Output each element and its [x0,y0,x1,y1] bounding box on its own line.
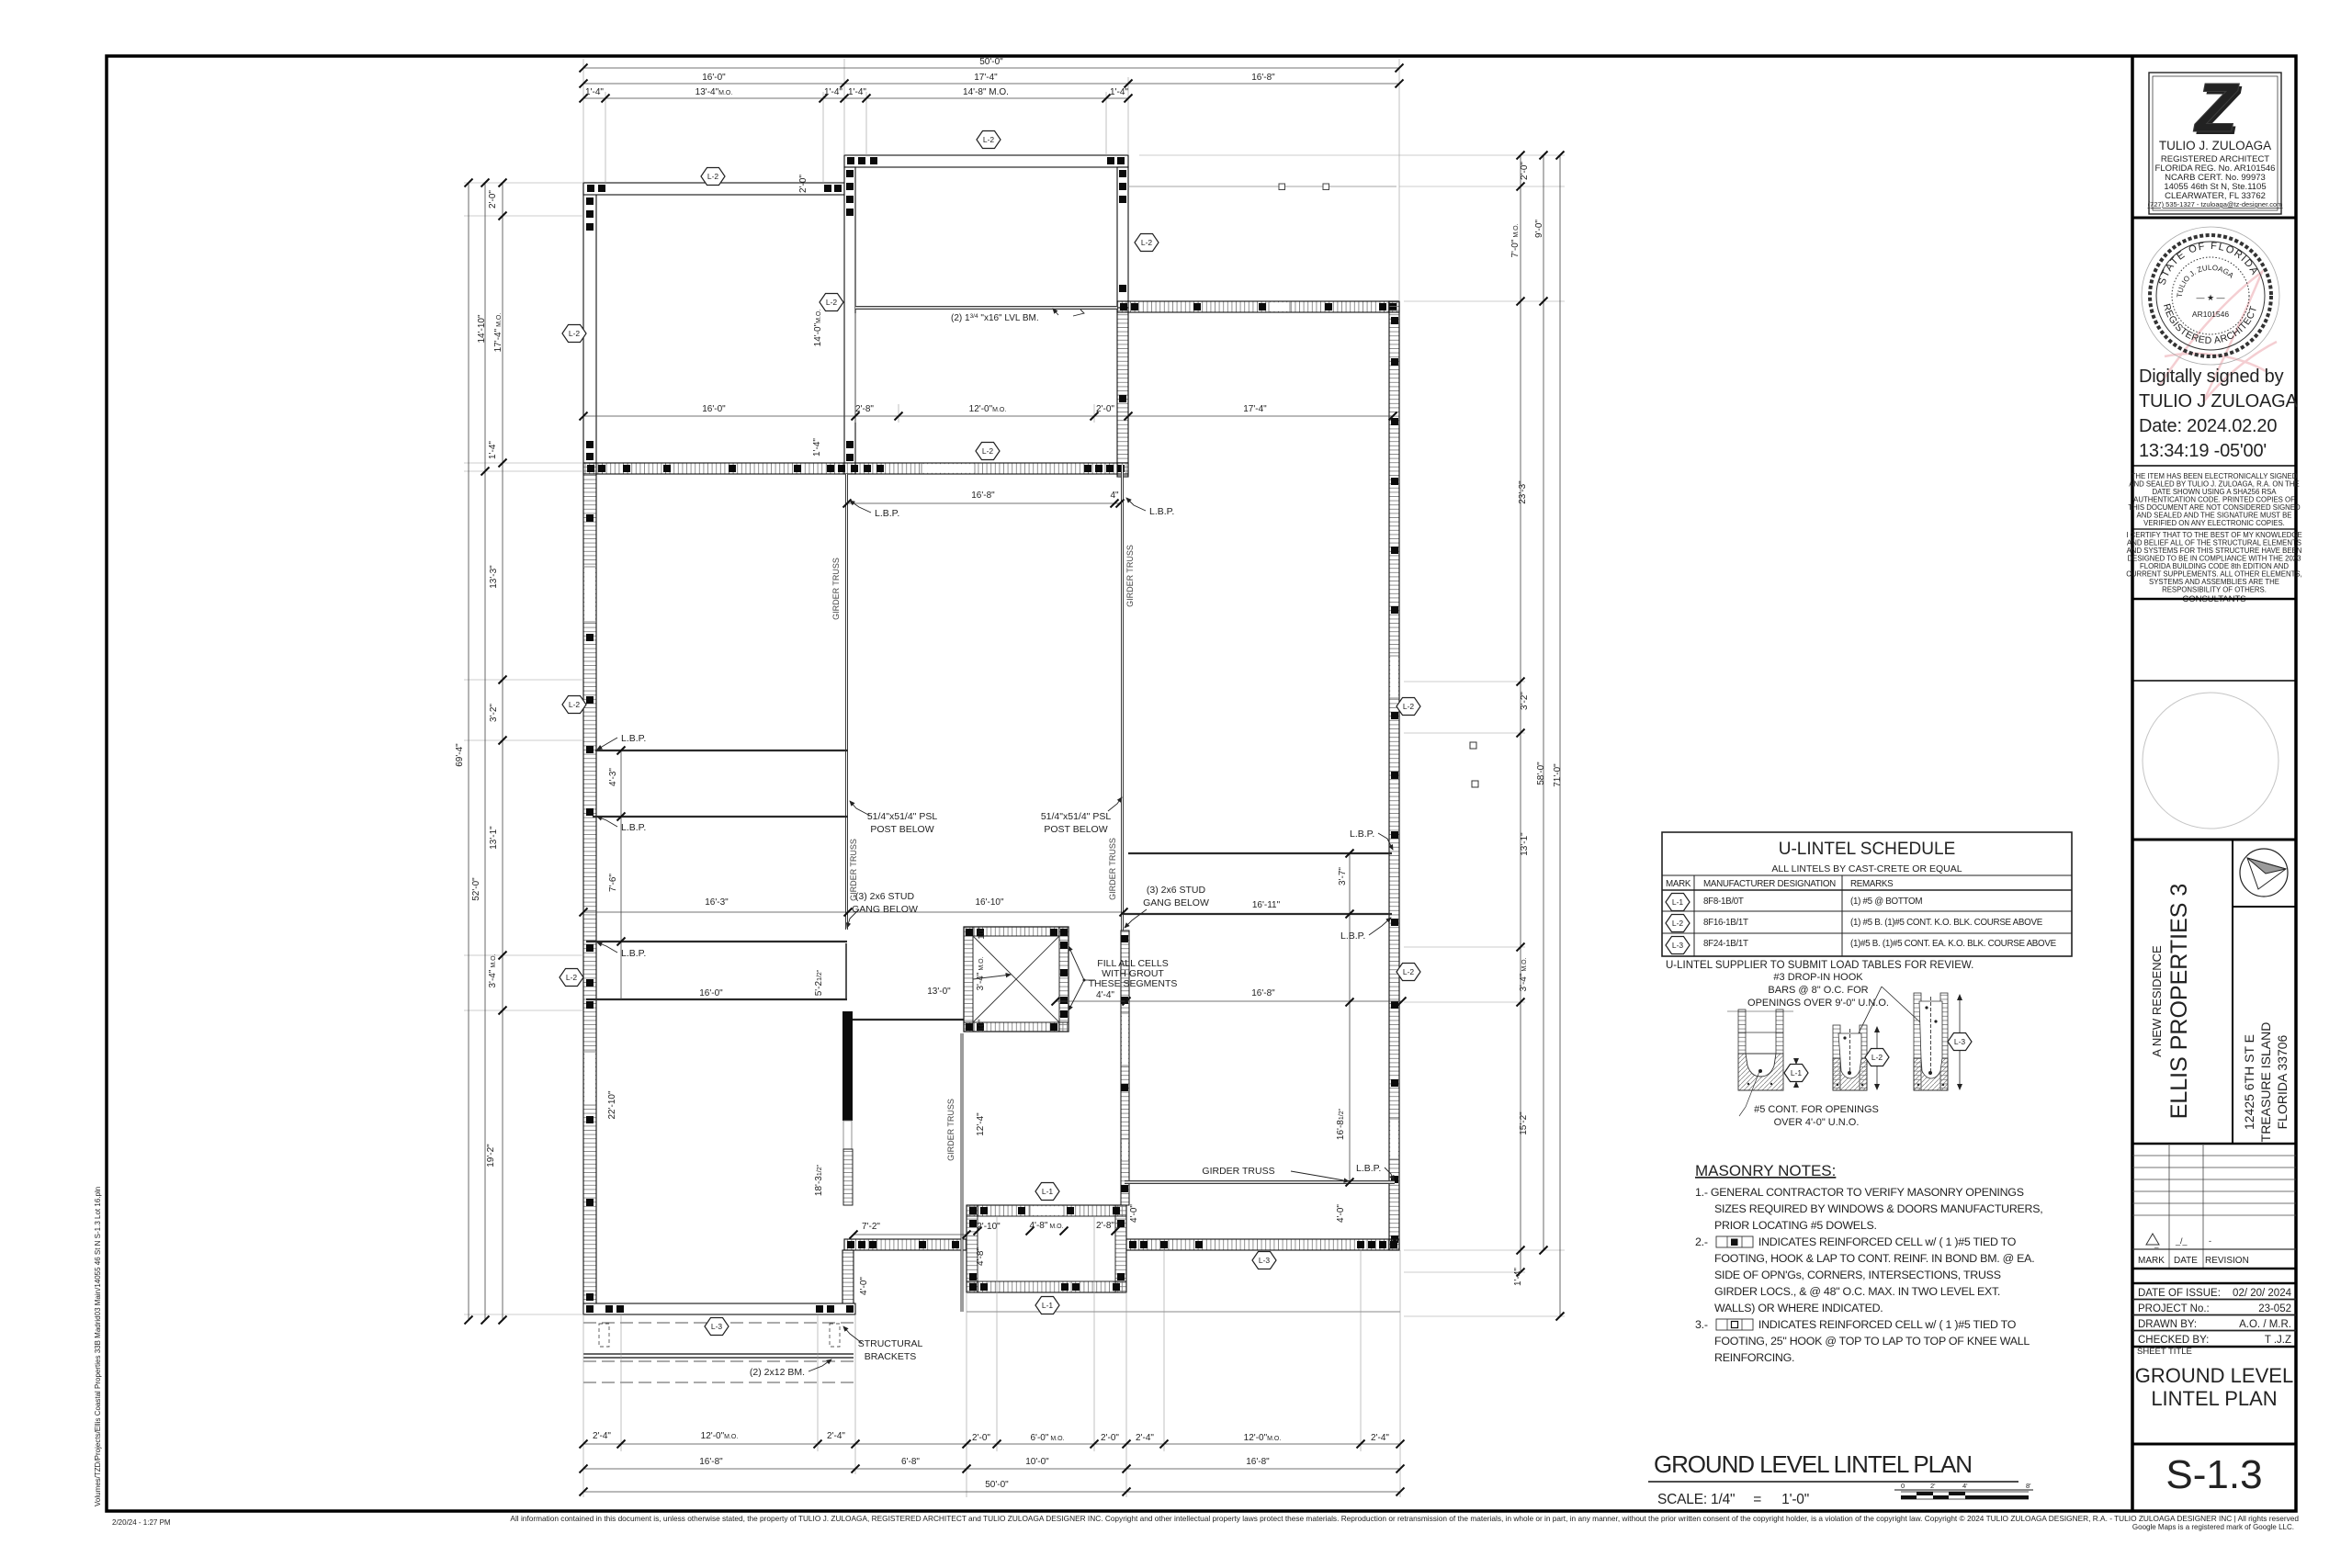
svg-text:(2) 2x12 BM.: (2) 2x12 BM. [750,1367,805,1378]
svg-text:4'-4": 4'-4" [1096,990,1114,1000]
svg-text:0: 0 [1901,1482,1905,1490]
svg-text:GANG BELOW: GANG BELOW [852,904,918,915]
svg-text:16'-8": 16'-8" [699,1457,723,1467]
svg-text:L-3: L-3 [711,1322,723,1331]
svg-text:ALL LINTELS BY CAST-CRETE OR E: ALL LINTELS BY CAST-CRETE OR EQUAL [1771,863,1962,874]
svg-text:10": 10" [977,927,986,939]
svg-text:L-2: L-2 [1141,238,1153,247]
svg-text:L-1: L-1 [1042,1301,1054,1310]
svg-text:MARK: MARK [1666,879,1691,889]
svg-text:L.B.P.: L.B.P. [1340,931,1365,942]
svg-text:23-052: 23-052 [2258,1303,2291,1314]
svg-text:58'-0": 58'-0" [1536,761,1546,785]
svg-text:SCALE: 1/4"=1'-0": SCALE: 1/4"=1'-0" [1657,1492,1809,1507]
svg-text:Z: Z [2193,69,2240,146]
svg-text:16'-8": 16'-8" [1251,73,1275,83]
svg-text:8F24-1B/1T: 8F24-1B/1T [1703,939,1748,949]
svg-text:2'-4": 2'-4" [1371,1433,1389,1443]
svg-text:3'-7": 3'-7" [1338,867,1348,886]
svg-text:4'-8": 4'-8" [976,1247,986,1266]
svg-text:OVER 4'-0" U.N.O.: OVER 4'-0" U.N.O. [1774,1117,1860,1128]
svg-text:14'-10": 14'-10" [477,314,487,343]
svg-text:7'-2": 7'-2" [862,1222,880,1232]
svg-text:MANUFACTURER DESIGNATION: MANUFACTURER DESIGNATION [1703,879,1836,889]
svg-text:69'-4": 69'-4" [455,743,465,767]
svg-text:L-1: L-1 [1791,1068,1803,1077]
svg-text:GIRDER TRUSS: GIRDER TRUSS [1108,838,1117,900]
svg-text:AR101546: AR101546 [2192,310,2229,319]
svg-text:L-1: L-1 [1042,1187,1054,1196]
svg-text:1.- GENERAL CONTRACTOR TO VERI: 1.- GENERAL CONTRACTOR TO VERIFY MASONRY… [1695,1186,2024,1199]
svg-text:L-2: L-2 [826,298,838,307]
svg-text:23'-3": 23'-3" [1518,480,1528,504]
svg-text:POST BELOW: POST BELOW [870,824,933,835]
svg-text:10": 10" [977,1019,986,1031]
svg-text:7'-6": 7'-6" [608,874,618,892]
svg-text:Volumes/TZD/Projects/Ellis Coa: Volumes/TZD/Projects/Ellis Coastal Prope… [94,1187,102,1506]
svg-text:4'-3": 4'-3" [608,768,618,786]
svg-text:2'-0": 2'-0" [1520,162,1530,180]
svg-text:L-2: L-2 [569,700,581,709]
svg-text:02/ 20/ 2024: 02/ 20/ 2024 [2233,1288,2292,1299]
svg-text:DRAWN BY:: DRAWN BY: [2138,1319,2197,1330]
svg-text:GROUND LEVEL: GROUND LEVEL [2135,1364,2293,1387]
svg-text:L-1: L-1 [1672,897,1684,907]
svg-text:LINTEL PLAN: LINTEL PLAN [2151,1387,2277,1410]
svg-text:U-LINTEL SUPPLIER TO SUBMIT LO: U-LINTEL SUPPLIER TO SUBMIT LOAD TABLES … [1666,960,1973,971]
svg-text:(727) 535-1327 - tzuloaga@tz-d: (727) 535-1327 - tzuloaga@tz-designer.co… [2148,200,2283,209]
svg-text:GIRDER TRUSS: GIRDER TRUSS [831,558,841,620]
svg-text:L.B.P.: L.B.P. [1149,506,1174,517]
svg-text:_/_: _/_ [2175,1236,2188,1246]
svg-text:L.B.P.: L.B.P. [621,733,646,744]
svg-text:13'-0": 13'-0" [927,987,951,997]
svg-text:POST BELOW: POST BELOW [1044,824,1107,835]
svg-text:2/20/24 - 1:27 PM: 2/20/24 - 1:27 PM [112,1518,171,1527]
svg-text:4'-0": 4'-0" [1336,1204,1346,1223]
svg-text:50'-0": 50'-0" [985,1480,1009,1490]
svg-text:RESPONSIBILITY OF OTHERS.: RESPONSIBILITY OF OTHERS. [2162,586,2267,594]
svg-text:13'-1": 13'-1" [1520,832,1530,856]
svg-text:16'-11": 16'-11" [1252,900,1281,910]
svg-text:6'-8": 6'-8" [901,1457,920,1467]
svg-text:A.O. / M.R.: A.O. / M.R. [2239,1319,2291,1330]
svg-text:1'-4": 1'-4" [488,441,498,459]
svg-text:(2) 13/4 "x16" LVL BM.: (2) 13/4 "x16" LVL BM. [951,313,1039,323]
svg-text:16'-0": 16'-0" [702,404,726,414]
svg-text:L-2: L-2 [569,329,581,338]
svg-text:L-3: L-3 [1672,941,1684,950]
svg-text:10'-0": 10'-0" [1025,1457,1049,1467]
svg-text:16'-8": 16'-8" [1251,988,1275,998]
svg-text:GIRDER TRUSS: GIRDER TRUSS [1202,1166,1274,1177]
svg-text:2'-0": 2'-0" [1096,404,1114,414]
svg-text:FOOTING, HOOK & LAP TO CONT. R: FOOTING, HOOK & LAP TO CONT. REINF. IN B… [1714,1252,2034,1265]
svg-text:#5 CONT. FOR OPENINGS: #5 CONT. FOR OPENINGS [1754,1104,1879,1115]
svg-text:4'-0": 4'-0" [859,1277,869,1295]
svg-text:22'-10": 22'-10" [607,1090,617,1119]
svg-text:14'-8" M.O.: 14'-8" M.O. [963,87,1009,97]
svg-text:PROJECT No.:: PROJECT No.: [2138,1303,2210,1314]
svg-text:2'-0": 2'-0" [972,1433,990,1443]
svg-text:16'-0": 16'-0" [699,988,723,998]
svg-text:2'-0": 2'-0" [1101,1433,1119,1443]
svg-text:16'-3": 16'-3" [705,897,729,908]
svg-text:71'-0": 71'-0" [1553,763,1563,787]
svg-text:16'-8": 16'-8" [971,491,995,501]
svg-text:4'-0": 4'-0" [1129,1204,1139,1223]
svg-text:SIDE OF OPN'Gs, CORNERS, INTER: SIDE OF OPN'Gs, CORNERS, INTERSECTIONS, … [1714,1269,2001,1281]
svg-text:GIRDER TRUSS: GIRDER TRUSS [1125,545,1135,607]
svg-text:FOOTING, 25" HOOK @ TOP TO LAP: FOOTING, 25" HOOK @ TOP TO LAP TO TOP OF… [1714,1335,2030,1348]
svg-text:L-2: L-2 [982,446,994,456]
svg-text:L-2: L-2 [1403,967,1415,976]
svg-text:L-2: L-2 [707,172,719,181]
svg-text:L-2: L-2 [1871,1053,1883,1062]
svg-text:52'-0": 52'-0" [471,877,481,901]
svg-text:19'-2": 19'-2" [486,1144,496,1168]
svg-text:U-LINTEL SCHEDULE: U-LINTEL SCHEDULE [1779,840,1956,859]
svg-text:L-2: L-2 [1403,702,1415,711]
svg-text:TULIO J ZULOAGA: TULIO J ZULOAGA [2139,391,2298,412]
svg-text:T .J.Z: T .J.Z [2265,1335,2291,1346]
svg-text:ELLIS PROPERTIES 3: ELLIS PROPERTIES 3 [2166,884,2192,1120]
svg-text:2'-4": 2'-4" [1136,1433,1154,1443]
svg-text:2'-4": 2'-4" [827,1431,845,1441]
svg-text:S-1.3: S-1.3 [2165,1452,2262,1497]
svg-text:Digitally signed by: Digitally signed by [2139,367,2284,387]
svg-text:MASONRY NOTES:: MASONRY NOTES: [1695,1162,1836,1179]
svg-text:16'-8": 16'-8" [1246,1457,1270,1467]
svg-text:STRUCTURAL: STRUCTURAL [858,1338,923,1349]
svg-text:8F8-1B/0T: 8F8-1B/0T [1703,897,1744,907]
svg-text:-: - [2209,1236,2211,1246]
svg-text:17'-4": 17'-4" [974,73,998,83]
svg-text:3'-2": 3'-2" [1520,692,1530,710]
svg-text:L-2: L-2 [1672,919,1684,928]
svg-text:3'-2": 3'-2" [489,704,499,722]
svg-text:1'-4": 1'-4" [1110,87,1128,97]
svg-text:8': 8' [2026,1482,2031,1490]
svg-text:TULIO J. ZULOAGA: TULIO J. ZULOAGA [2159,139,2271,152]
svg-text:L.B.P.: L.B.P. [1350,829,1374,840]
svg-text:PRIOR LOCATING #5 DOWELS.: PRIOR LOCATING #5 DOWELS. [1714,1219,1877,1232]
svg-text:L.B.P.: L.B.P. [1356,1163,1381,1174]
svg-text:4': 4' [1962,1482,1968,1490]
svg-text:L.B.P.: L.B.P. [621,822,646,833]
svg-text:13'-3": 13'-3" [489,565,499,589]
svg-text:OPENINGS OVER 9'-0" U.N.O.: OPENINGS OVER 9'-0" U.N.O. [1747,998,1889,1009]
svg-text:TREASURE ISLAND: TREASURE ISLAND [2258,1022,2273,1143]
svg-text:DATE OF ISSUE:: DATE OF ISSUE: [2138,1288,2221,1299]
svg-text:13:34:19 -05'00': 13:34:19 -05'00' [2139,441,2267,461]
svg-text:2'-0": 2'-0" [798,175,808,193]
svg-text:L.B.P.: L.B.P. [875,508,899,519]
svg-text:DATE: DATE [2174,1256,2198,1266]
svg-text:16'-0": 16'-0" [702,73,726,83]
svg-text:2'-8": 2'-8" [855,404,874,414]
svg-text:BRACKETS: BRACKETS [865,1351,917,1362]
svg-text:GIRDER TRUSS: GIRDER TRUSS [946,1099,955,1161]
svg-text:L-3: L-3 [1259,1256,1271,1265]
svg-text:(1)#5 B. (1)#5 CONT. EA. K.O.: (1)#5 B. (1)#5 CONT. EA. K.O. BLK. COURS… [1850,939,2057,949]
svg-text:L-2: L-2 [566,973,578,982]
svg-text:L.B.P.: L.B.P. [621,948,646,959]
svg-text:FLORIDA 33706: FLORIDA 33706 [2275,1034,2290,1129]
svg-text:_: _ [2154,1240,2159,1248]
svg-text:All information contained in t: All information contained in this docume… [510,1514,2299,1523]
svg-text:— ★ —: — ★ — [2196,293,2224,302]
svg-text:51/4"x51/4" PSL: 51/4"x51/4" PSL [1041,811,1112,822]
svg-text:REMARKS: REMARKS [1850,879,1894,889]
svg-text:1'-4": 1'-4" [848,87,866,97]
svg-text:(1) #5 @ BOTTOM: (1) #5 @ BOTTOM [1850,897,1922,907]
svg-text:REVISION: REVISION [2205,1256,2249,1266]
svg-text:1'-4": 1'-4" [812,438,822,457]
svg-text:15'-2": 15'-2" [1519,1111,1529,1135]
svg-text:A NEW RESIDENCE: A NEW RESIDENCE [2150,945,2164,1057]
svg-text:VERIFIED ON ANY ELECTRONIC COP: VERIFIED ON ANY ELECTRONIC COPIES. [2143,519,2285,527]
svg-text:12'-4": 12'-4" [976,1112,986,1136]
svg-text:GANG BELOW: GANG BELOW [1143,897,1209,908]
svg-text:REINFORCING.: REINFORCING. [1714,1351,1794,1364]
svg-text:16'-10": 16'-10" [975,897,1003,908]
svg-text:2': 2' [1930,1482,1936,1490]
svg-text:THESE SEGMENTS: THESE SEGMENTS [1089,978,1178,989]
svg-text:#3 DROP-IN HOOK: #3 DROP-IN HOOK [1773,972,1863,983]
svg-text:17'-4": 17'-4" [1243,404,1267,414]
svg-text:(1) #5 B. (1)#5 CONT. K.O. BLK: (1) #5 B. (1)#5 CONT. K.O. BLK. COURSE A… [1850,918,2043,928]
svg-text:GIRDER LOCS., & @ 48" O.C. MAX: GIRDER LOCS., & @ 48" O.C. MAX. IN TWO L… [1714,1285,2000,1298]
svg-text:L-3: L-3 [1954,1037,1966,1046]
svg-text:SHEET TITLE: SHEET TITLE [2137,1347,2192,1357]
svg-text:12425 6TH ST E: 12425 6TH ST E [2242,1034,2256,1130]
svg-text:1'-4": 1'-4" [1513,1268,1523,1286]
svg-text:51/4"x51/4" PSL: 51/4"x51/4" PSL [867,811,938,822]
svg-text:Date: 2024.02.20: Date: 2024.02.20 [2139,416,2277,436]
svg-text:BARS @ 8" O.C. FOR: BARS @ 8" O.C. FOR [1768,985,1868,996]
svg-text:(3) 2x6 STUD: (3) 2x6 STUD [1147,885,1206,896]
svg-text:4": 4" [1110,491,1119,501]
svg-text:2'-10": 2'-10" [977,1222,1001,1232]
svg-text:GROUND LEVEL LINTEL PLAN: GROUND LEVEL LINTEL PLAN [1654,1450,1972,1478]
svg-text:SIZES REQUIRED BY WINDOWS & DO: SIZES REQUIRED BY WINDOWS & DOORS MANUFA… [1714,1202,2042,1215]
svg-text:13'-1": 13'-1" [489,826,499,850]
svg-text:8F16-1B/1T: 8F16-1B/1T [1703,918,1748,928]
svg-text:MARK: MARK [2138,1256,2165,1266]
svg-text:2'-4": 2'-4" [593,1431,611,1441]
svg-text:1'-4": 1'-4" [824,87,842,97]
svg-text:2'-0": 2'-0" [488,190,498,209]
svg-text:WALLS) OR WHERE INDICATED.: WALLS) OR WHERE INDICATED. [1714,1302,1883,1314]
svg-text:50'-0": 50'-0" [979,57,1003,67]
svg-text:(3) 2x6 STUD: (3) 2x6 STUD [855,891,915,902]
svg-text:CHECKED BY:: CHECKED BY: [2138,1335,2209,1346]
svg-text:L-2: L-2 [983,135,995,144]
svg-text:1'-4": 1'-4" [585,87,604,97]
svg-text:2'-8": 2'-8" [1096,1221,1114,1231]
svg-text:Google Maps is a registered ma: Google Maps is a registered mark of Goog… [2132,1523,2294,1531]
svg-text:9'-0": 9'-0" [1534,220,1544,238]
